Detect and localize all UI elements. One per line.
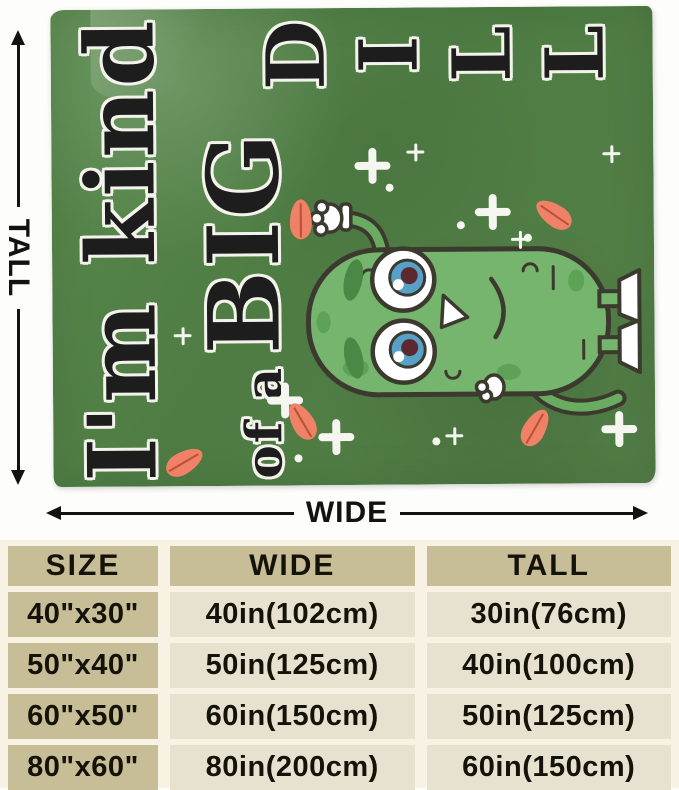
tall-dimension-arrow: TALL: [1, 30, 35, 485]
wide-cell: 50in(125cm): [170, 643, 415, 688]
size-cell: 50"x40": [8, 643, 158, 688]
dot-icon: [294, 454, 302, 462]
blanket-printed-design: I'm kind of a BIG: [61, 9, 644, 483]
wide-cell: 80in(200cm): [170, 745, 415, 790]
dill-letter: I: [342, 19, 435, 89]
arrow-up-icon: [11, 30, 25, 45]
sparkle-icon: [602, 145, 620, 163]
size-chart-table: SIZE WIDE TALL 40"x30" 40in(102cm) 30in(…: [0, 540, 679, 788]
design-bottom-row: D I L L: [295, 9, 646, 481]
arrow-line: [61, 512, 294, 515]
sparkle-icon: [601, 411, 637, 447]
wide-cell: 60in(150cm): [170, 694, 415, 739]
dot-icon: [432, 437, 440, 445]
column-header-wide: WIDE: [170, 546, 415, 586]
dot-icon: [386, 183, 394, 191]
wide-cell: 40in(102cm): [170, 592, 415, 637]
dill-letter: D: [249, 20, 342, 90]
sparkle-icon: [406, 143, 424, 161]
arrow-line: [17, 45, 20, 207]
product-photo: TALL I'm kind of a BIG: [0, 0, 679, 540]
sparkle-icon: [354, 147, 390, 183]
arrow-line: [17, 309, 20, 471]
dill-letter: L: [435, 18, 528, 88]
size-cell: 80"x60": [8, 745, 158, 790]
dot-icon: [457, 221, 465, 229]
wide-dimension-arrow: WIDE: [46, 492, 648, 534]
size-cell: 60"x50": [8, 694, 158, 739]
sparkle-icon: [445, 427, 463, 445]
design-text-big: BIG: [192, 129, 298, 354]
arrow-line: [400, 512, 633, 515]
sparkle-icon: [475, 193, 511, 229]
tall-cell: 30in(76cm): [427, 592, 672, 637]
size-cell: 40"x30": [8, 592, 158, 637]
sparkle-icon: [174, 327, 192, 345]
tall-cell: 50in(125cm): [427, 694, 672, 739]
arrow-right-icon: [633, 506, 648, 520]
tall-cell: 60in(150cm): [427, 745, 672, 790]
dill-letter: L: [528, 18, 621, 88]
column-header-tall: TALL: [427, 546, 672, 586]
arrow-down-icon: [11, 470, 25, 485]
blanket-image: I'm kind of a BIG: [50, 6, 655, 487]
pickle-character-illustration: [283, 177, 647, 430]
design-text-line1: I'm kind: [67, 13, 176, 482]
tall-label: TALL: [1, 218, 35, 296]
sparkle-icon: [318, 418, 354, 454]
wide-label: WIDE: [306, 496, 388, 530]
column-header-size: SIZE: [8, 546, 158, 586]
dot-icon: [524, 233, 532, 241]
design-text-dill: D I L L: [249, 18, 621, 90]
arrow-left-icon: [46, 506, 61, 520]
tall-cell: 40in(100cm): [427, 643, 672, 688]
glove-up: [311, 201, 351, 235]
